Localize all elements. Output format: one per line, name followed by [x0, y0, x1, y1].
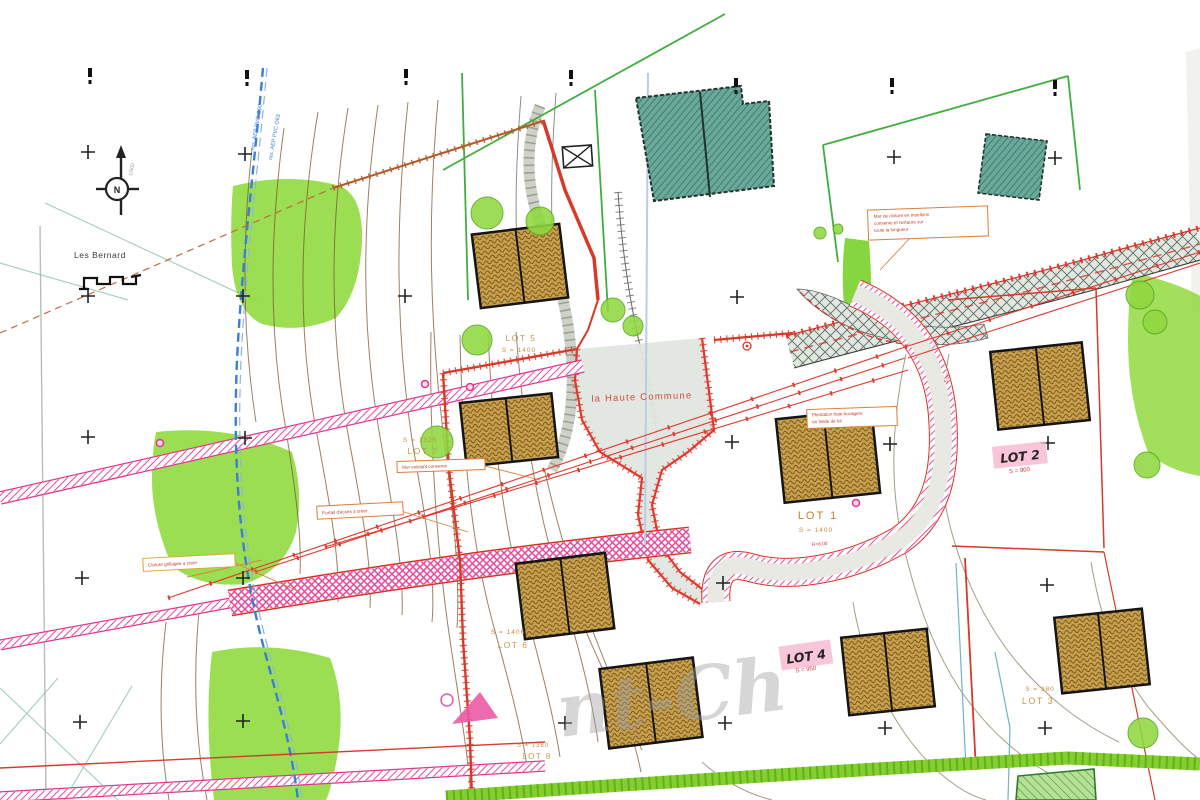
note-box: Mur de cloture en moellons conserve et r…: [868, 206, 989, 240]
lot-5-area: S = 1400: [502, 347, 536, 354]
watermark-text: nt-Ch: [552, 641, 792, 755]
water-main-label: res. AEP PVC O63: [268, 114, 282, 160]
site-plan-canvas: N 1/500 Mur de cloture en moellons conse…: [0, 0, 1200, 800]
existing-building-green: [1016, 769, 1096, 800]
existing-building-annex: [978, 134, 1047, 200]
lot-1-label: LOT 1: [798, 510, 838, 522]
lot-7-label: LOT 7: [408, 446, 439, 456]
svg-text:en limite de lot: en limite de lot: [812, 418, 842, 424]
dimension-label: R=8.00: [812, 541, 828, 548]
lot-6-label: LOT 6: [498, 640, 529, 650]
lot-3-area: S = 980: [1025, 686, 1055, 693]
lot-6-area: S = 1406: [491, 629, 525, 636]
benchmark-icons: [88, 68, 1057, 96]
north-arrow-icon: N 1/500: [96, 145, 139, 215]
lot-2-area: S = 900: [1009, 467, 1031, 475]
lot-4-label-group: LOT 4 S = 950: [778, 640, 834, 677]
existing-building-barn: [636, 86, 774, 201]
lot-1-area: S = 1400: [799, 527, 833, 534]
lot-8-area: S = 1380: [517, 743, 549, 749]
lot-7-area: S = 1325: [403, 437, 437, 444]
site-plan-document: N 1/500 Mur de cloture en moellons conse…: [0, 0, 1200, 800]
place-label-les-bernard: Les Bernard: [74, 250, 126, 260]
north-label: N: [114, 185, 121, 195]
lot-5-label: LOT 5: [506, 333, 537, 343]
well-icon: [562, 145, 592, 168]
note-box: Mur existant conserve: [397, 458, 485, 472]
lot-8-label: LOT 8: [522, 752, 552, 761]
section-marker-icon: [79, 275, 141, 289]
note-box: Plantation haie bocagere en limite de lo…: [807, 406, 898, 428]
lot-2-label-group: LOT 2 S = 900: [992, 441, 1049, 476]
north-arrow-note: 1/500: [128, 163, 136, 177]
lot-3-label: LOT 3: [1022, 696, 1054, 706]
